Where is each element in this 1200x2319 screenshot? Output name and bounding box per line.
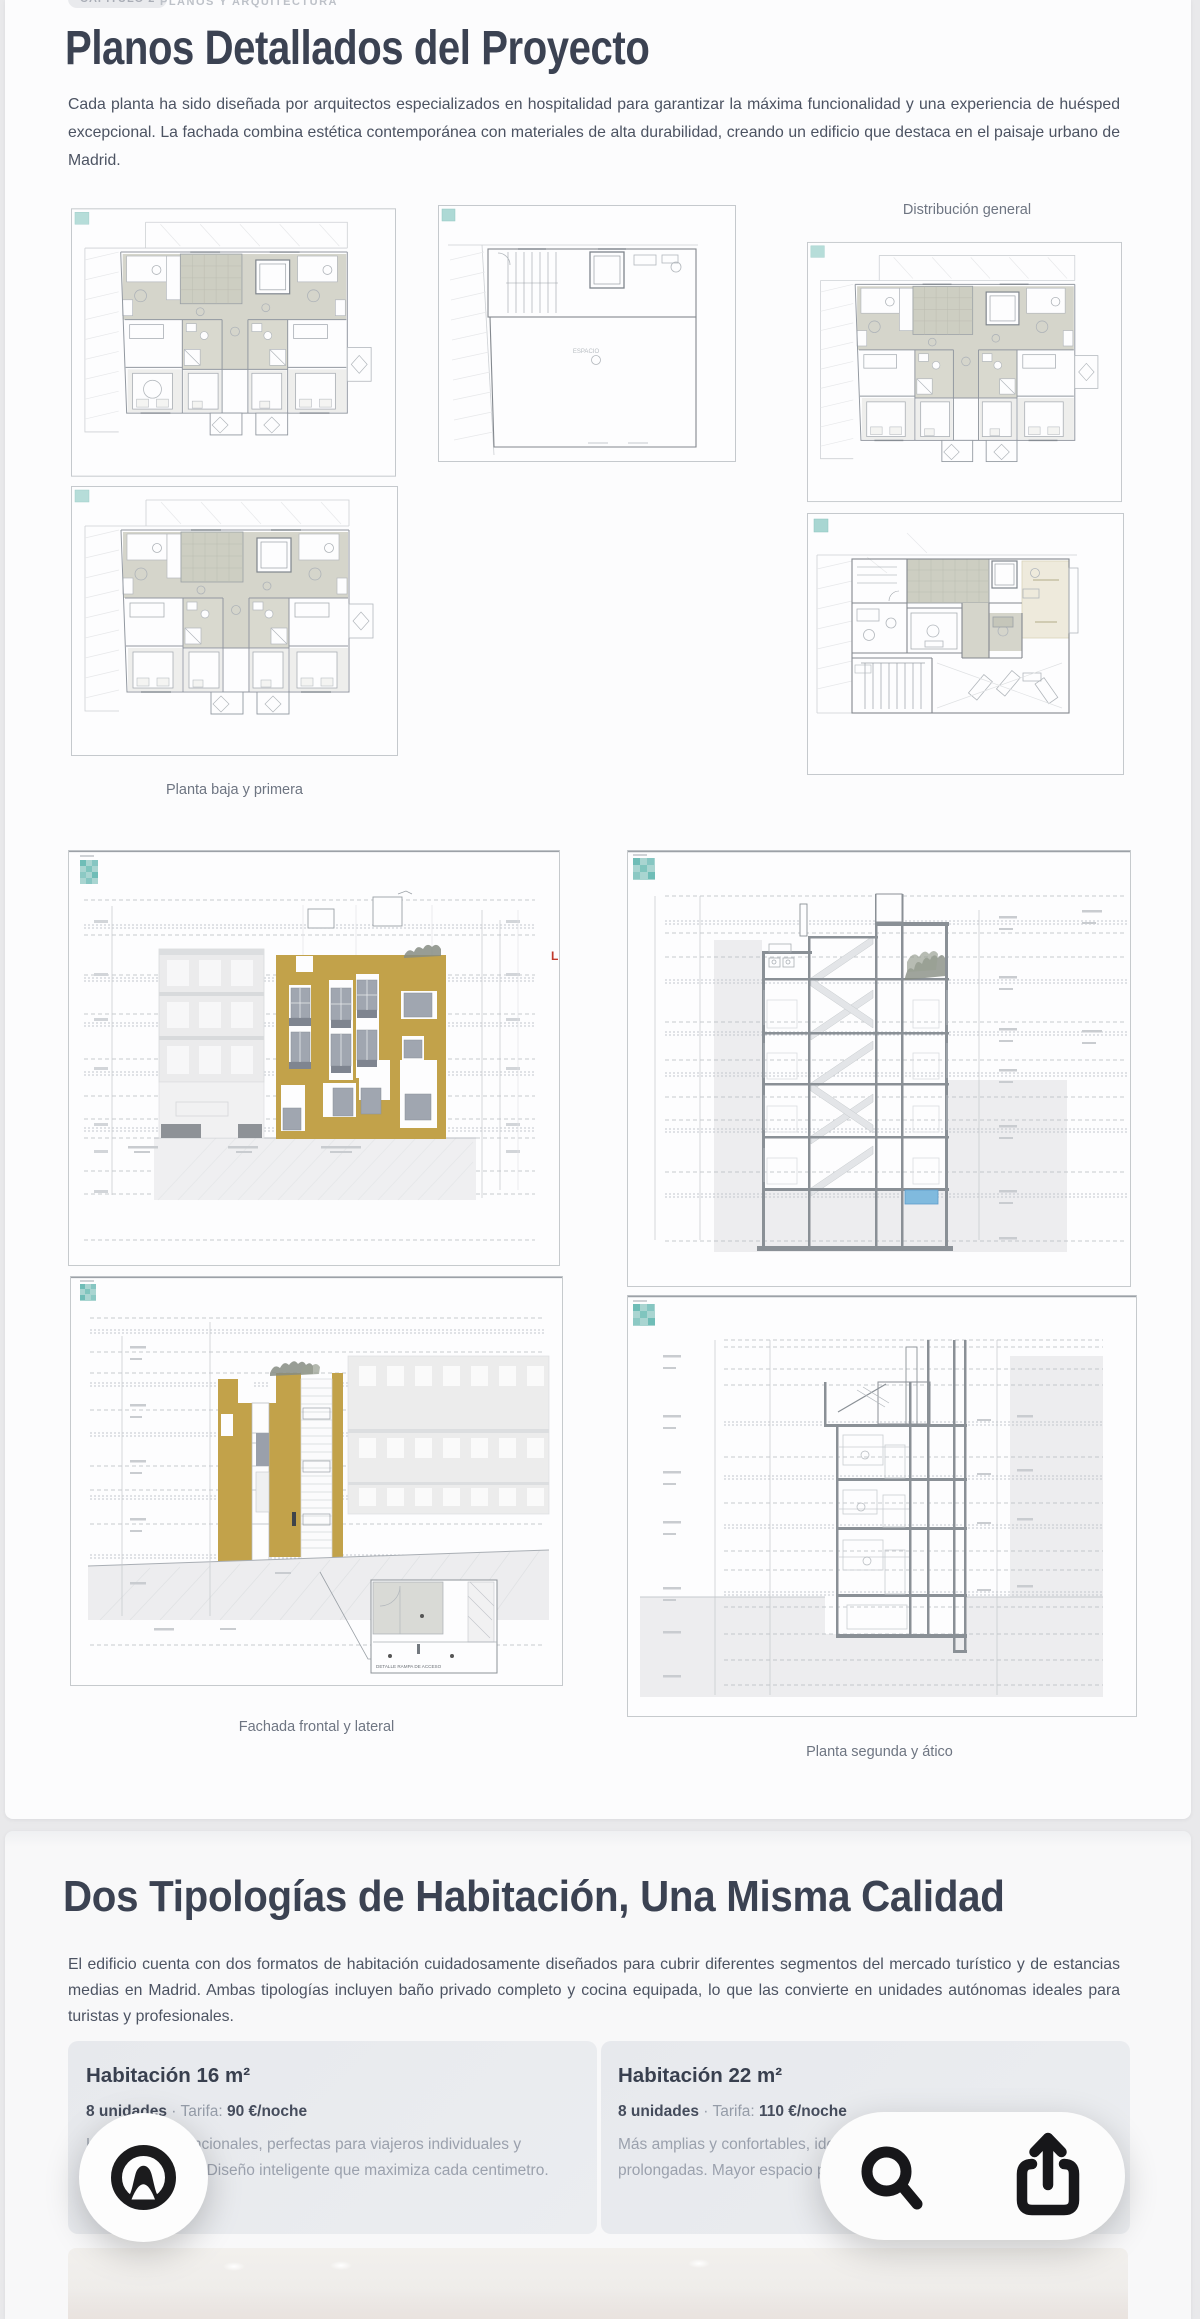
svg-text:L: L xyxy=(551,949,558,963)
svg-text:DETALLE RAMPA DE ACCESO: DETALLE RAMPA DE ACCESO xyxy=(376,1664,442,1669)
svg-text:ESPACIO: ESPACIO xyxy=(573,349,600,355)
